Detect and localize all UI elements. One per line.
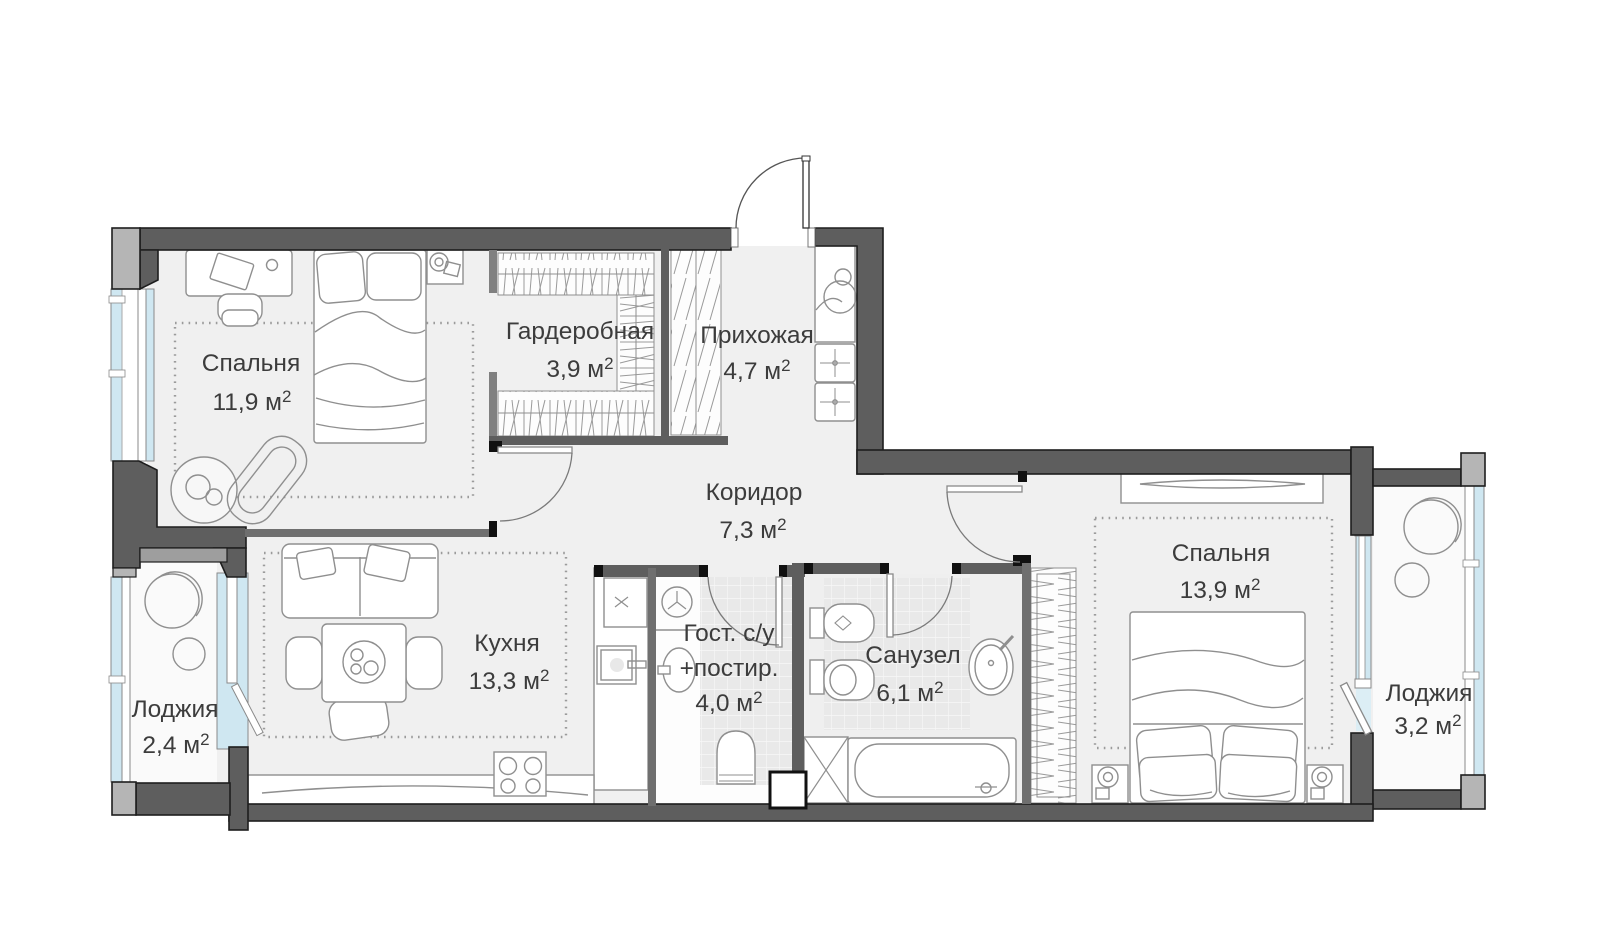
svg-text:3,9 м2: 3,9 м2: [546, 354, 613, 383]
svg-text:4,0 м2: 4,0 м2: [695, 688, 762, 717]
svg-text:Прихожая: Прихожая: [700, 322, 814, 349]
svg-text:Спальня: Спальня: [1172, 540, 1270, 567]
svg-text:Кухня: Кухня: [474, 630, 540, 657]
svg-text:3,2 м2: 3,2 м2: [1394, 711, 1461, 740]
svg-text:13,3 м2: 13,3 м2: [469, 666, 550, 695]
svg-text:7,3 м2: 7,3 м2: [719, 515, 786, 544]
svg-text:6,1 м2: 6,1 м2: [876, 678, 943, 707]
svg-text:+постир.: +постир.: [680, 655, 779, 682]
svg-text:Коридор: Коридор: [706, 479, 803, 506]
svg-text:11,9 м2: 11,9 м2: [213, 387, 292, 416]
svg-text:Гардеробная: Гардеробная: [506, 318, 654, 345]
svg-text:Гост. с/у: Гост. с/у: [684, 620, 776, 647]
svg-text:Лоджия: Лоджия: [1386, 680, 1473, 707]
svg-text:13,9 м2: 13,9 м2: [1180, 575, 1261, 604]
svg-text:4,7 м2: 4,7 м2: [723, 356, 790, 385]
svg-text:Спальня: Спальня: [202, 350, 300, 377]
svg-text:Санузел: Санузел: [865, 642, 960, 669]
svg-text:Лоджия: Лоджия: [132, 696, 219, 723]
svg-text:2,4 м2: 2,4 м2: [142, 730, 209, 759]
